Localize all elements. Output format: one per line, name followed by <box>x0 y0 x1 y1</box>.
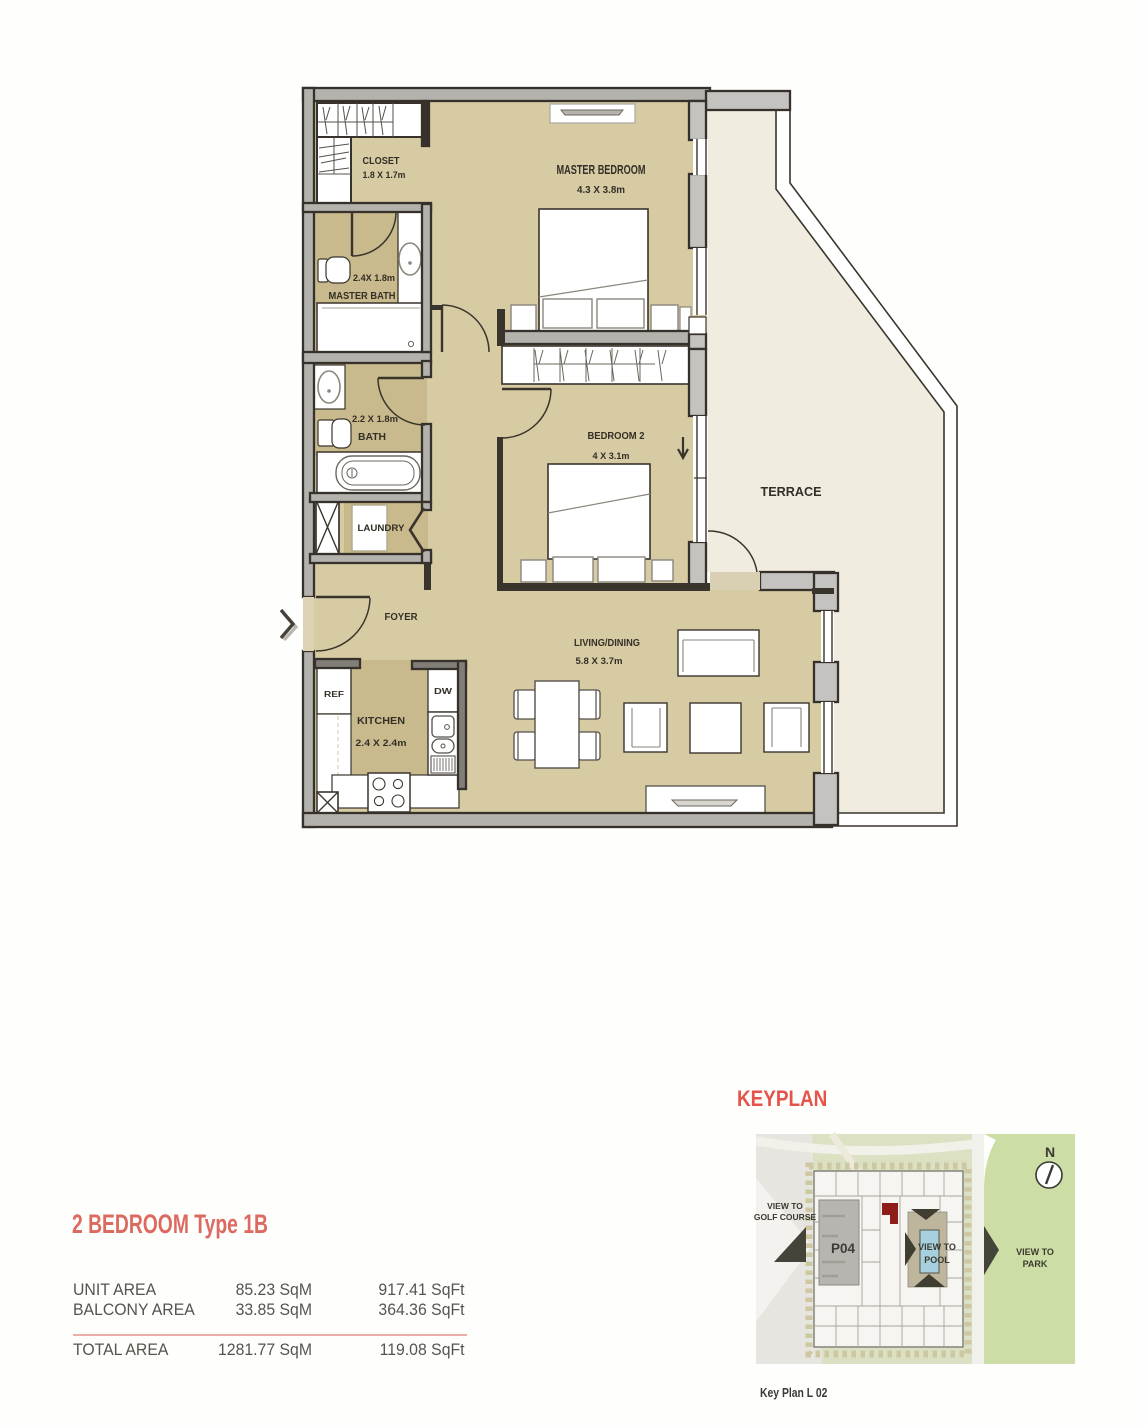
svg-text:119.08 SqFt: 119.08 SqFt <box>380 1341 465 1360</box>
svg-text:BALCONY AREA: BALCONY AREA <box>73 1301 195 1320</box>
svg-text:P04: P04 <box>831 1241 856 1256</box>
svg-text:POOL: POOL <box>924 1255 950 1265</box>
svg-text:364.36 SqFt: 364.36 SqFt <box>378 1301 465 1320</box>
svg-text:REF: REF <box>324 690 344 699</box>
svg-text:5.8 X 3.7m: 5.8 X 3.7m <box>576 656 623 667</box>
svg-text:2.2 X 1.8m: 2.2 X 1.8m <box>352 414 398 425</box>
svg-text:2.4 X 2.4m: 2.4 X 2.4m <box>356 738 407 749</box>
svg-text:UNIT AREA: UNIT AREA <box>73 1281 156 1300</box>
svg-text:TOTAL AREA: TOTAL AREA <box>73 1341 168 1360</box>
svg-text:BEDROOM 2: BEDROOM 2 <box>588 430 645 442</box>
svg-text:1281.77 SqM: 1281.77 SqM <box>218 1341 312 1360</box>
svg-text:33.85 SqM: 33.85 SqM <box>236 1301 312 1320</box>
svg-text:1.8 X 1.7m: 1.8 X 1.7m <box>363 170 406 181</box>
svg-text:LAUNDRY: LAUNDRY <box>358 523 405 533</box>
svg-text:FOYER: FOYER <box>385 612 419 623</box>
svg-text:KITCHEN: KITCHEN <box>357 716 405 727</box>
svg-text:MASTER BATH: MASTER BATH <box>329 291 396 302</box>
svg-text:Key Plan L 02: Key Plan L 02 <box>760 1386 828 1400</box>
svg-text:MASTER BEDROOM: MASTER BEDROOM <box>557 163 646 177</box>
svg-text:85.23 SqM: 85.23 SqM <box>236 1281 312 1300</box>
svg-text:2 BEDROOM Type 1B: 2 BEDROOM Type 1B <box>72 1209 268 1239</box>
svg-text:PARK: PARK <box>1023 1259 1048 1269</box>
svg-text:TERRACE: TERRACE <box>761 484 822 499</box>
svg-text:VIEW TO: VIEW TO <box>918 1242 956 1252</box>
svg-text:4 X 3.1m: 4 X 3.1m <box>593 451 630 462</box>
svg-text:2.4X 1.8m: 2.4X 1.8m <box>353 273 395 284</box>
svg-text:VIEW TO: VIEW TO <box>767 1201 803 1211</box>
svg-text:DW: DW <box>434 687 453 696</box>
svg-text:4.3 X 3.8m: 4.3 X 3.8m <box>577 184 625 196</box>
svg-text:917.41 SqFt: 917.41 SqFt <box>378 1281 465 1300</box>
svg-text:BATH: BATH <box>358 432 386 443</box>
svg-text:LIVING/DINING: LIVING/DINING <box>574 638 640 649</box>
svg-text:VIEW TO: VIEW TO <box>1016 1247 1054 1257</box>
svg-text:CLOSET: CLOSET <box>363 156 400 167</box>
svg-text:N: N <box>1045 1144 1055 1160</box>
svg-text:GOLF COURSE: GOLF COURSE <box>754 1212 817 1222</box>
svg-text:KEYPLAN: KEYPLAN <box>737 1087 827 1112</box>
